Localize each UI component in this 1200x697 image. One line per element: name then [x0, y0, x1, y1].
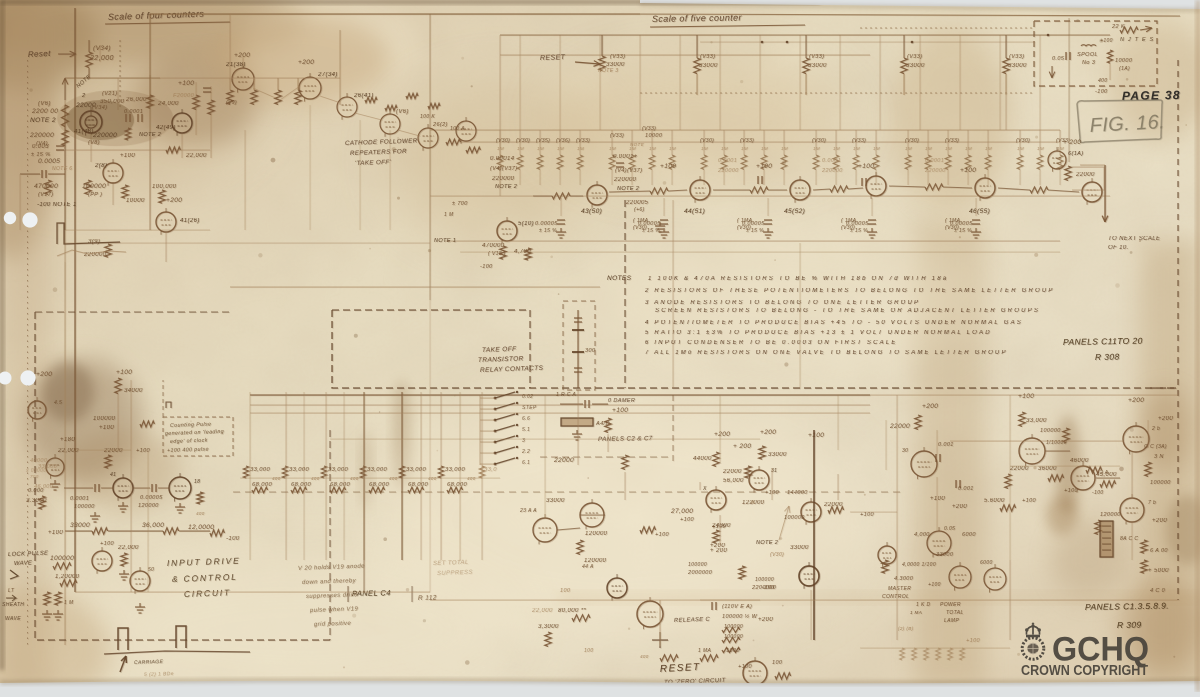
svg-text:CROWN COPYRIGHT: CROWN COPYRIGHT — [1021, 662, 1149, 679]
